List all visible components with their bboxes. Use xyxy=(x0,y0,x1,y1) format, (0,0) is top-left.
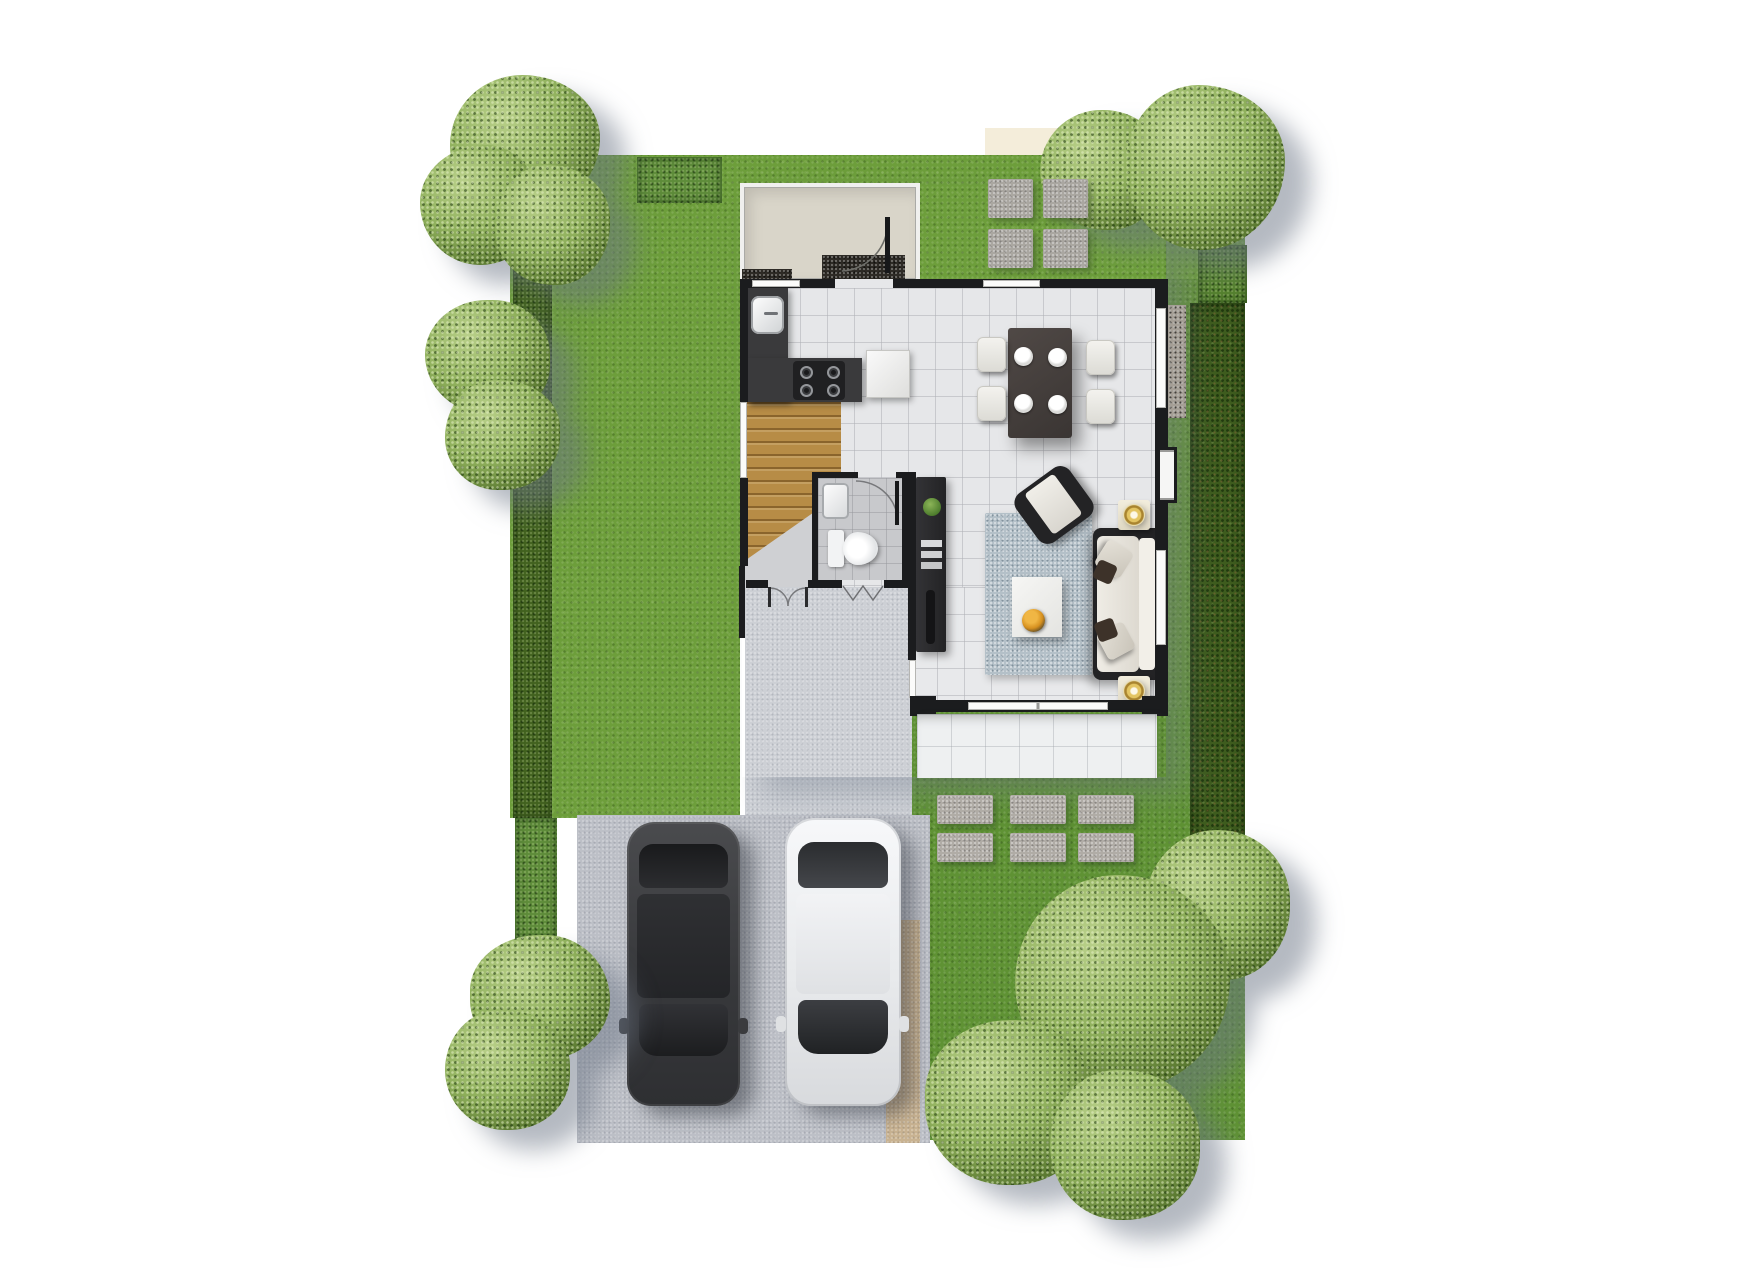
refrigerator xyxy=(866,350,910,398)
dark-sedan-rear-glass xyxy=(639,844,728,888)
dinner-plate xyxy=(1014,347,1033,366)
wall-north-east xyxy=(920,279,1168,288)
tree-left-middle xyxy=(415,300,580,495)
tree-canopy xyxy=(445,1010,570,1130)
sofa-back xyxy=(1139,538,1155,670)
white-sedan xyxy=(785,818,901,1106)
entry-paver xyxy=(988,229,1033,268)
garden-paver xyxy=(937,833,993,862)
tree-canopy xyxy=(1125,85,1285,250)
wall-south-pier-east xyxy=(1142,696,1168,716)
dining-window-east xyxy=(1156,308,1166,408)
window-west-living xyxy=(909,660,916,698)
stove-burner xyxy=(827,384,840,397)
sliding-door-south xyxy=(968,702,1108,710)
stair-window-west xyxy=(740,402,747,478)
site-plan-canvas xyxy=(0,0,1749,1280)
dinner-plate xyxy=(1048,395,1067,414)
dining-window-north xyxy=(983,280,1040,287)
soundbar xyxy=(926,590,935,644)
dark-sedan xyxy=(627,822,740,1106)
dinner-plate xyxy=(1048,348,1067,367)
dining-chair xyxy=(977,337,1006,372)
table-lamp-north xyxy=(1123,504,1145,526)
kitchen-window-north xyxy=(752,280,800,287)
kitchen-sink xyxy=(751,296,784,334)
hedge-left-lower xyxy=(515,818,557,940)
ac-unit xyxy=(1157,447,1177,503)
dining-chair xyxy=(977,386,1006,421)
terrace xyxy=(917,714,1157,778)
dark-sedan-roof xyxy=(637,894,730,998)
tree-canopy xyxy=(1050,1070,1200,1220)
wall-bath-west xyxy=(812,472,818,585)
french-door-swing xyxy=(768,586,808,612)
wall-bath-north xyxy=(812,472,858,478)
hedge-top-left xyxy=(637,157,722,203)
console-plant xyxy=(923,498,941,516)
yard-door-swing xyxy=(838,215,890,273)
wall-porch-west xyxy=(739,566,745,638)
stove-burner xyxy=(800,384,813,397)
console-books xyxy=(921,540,942,547)
entry-door-gap xyxy=(835,279,893,288)
white-sedan-roof xyxy=(796,894,890,994)
dining-chair xyxy=(1086,389,1115,424)
entry-paver xyxy=(1043,229,1088,268)
tree-canopy xyxy=(445,380,560,490)
bathroom-sink xyxy=(822,483,849,519)
entry-paver xyxy=(1043,179,1088,218)
dark-sedan-windshield xyxy=(639,1004,728,1056)
entry-paver xyxy=(988,179,1033,218)
wall-south-pier-west xyxy=(910,696,936,716)
garden-paver xyxy=(1010,833,1066,862)
bathroom-door-swing xyxy=(854,479,900,525)
dining-table xyxy=(1008,328,1072,438)
wall-porch-a xyxy=(746,580,768,588)
garden-paver xyxy=(1010,795,1066,824)
fruit-bowl xyxy=(1022,609,1045,632)
white-sedan-rear-glass xyxy=(798,842,888,888)
white-sedan-mirror-left xyxy=(776,1016,786,1032)
tree-bottom-left xyxy=(445,935,635,1140)
garden-paver xyxy=(1078,795,1134,824)
garden-paver xyxy=(1078,833,1134,862)
toilet-tank xyxy=(828,530,844,567)
wall-interior-tv xyxy=(908,472,916,660)
garden-paver xyxy=(937,795,993,824)
hedge-right-strip xyxy=(1190,303,1245,875)
wall-west-kitchen xyxy=(740,279,748,402)
dinner-plate xyxy=(1014,394,1033,413)
stove-burner xyxy=(827,366,840,379)
living-window-east xyxy=(1156,550,1166,645)
sink-faucet xyxy=(764,312,778,315)
dark-sedan-mirror-right xyxy=(738,1018,748,1034)
tree-top-left xyxy=(420,75,630,305)
folding-door-symbol xyxy=(842,584,884,604)
window-planter-slab xyxy=(1168,305,1186,418)
wall-west-hall xyxy=(740,478,748,566)
tree-bottom-right-cluster xyxy=(900,820,1320,1240)
dining-chair xyxy=(1086,340,1115,375)
tree-canopy xyxy=(495,165,610,285)
white-sedan-windshield xyxy=(798,1000,888,1054)
stove-burner xyxy=(800,366,813,379)
sofa xyxy=(1093,528,1163,680)
